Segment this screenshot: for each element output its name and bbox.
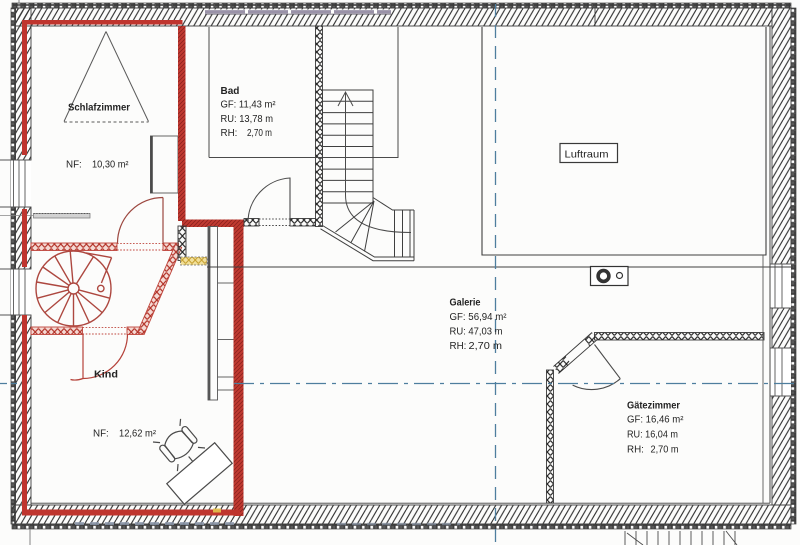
- svg-text:NF:: NF:: [66, 160, 82, 171]
- svg-text:RU: 13,78 m: RU: 13,78 m: [221, 114, 274, 125]
- svg-text:NF:: NF:: [93, 428, 109, 439]
- svg-text:10,30 m²: 10,30 m²: [92, 160, 129, 171]
- svg-text:RH:: RH:: [450, 341, 467, 352]
- svg-text:2,70 m: 2,70 m: [247, 128, 272, 139]
- svg-text:2,70 m: 2,70 m: [469, 341, 503, 352]
- svg-text:Gätezimmer: Gätezimmer: [627, 400, 680, 411]
- svg-text:GF: 16,46 m²: GF: 16,46 m²: [627, 414, 684, 425]
- svg-text:2,70 m: 2,70 m: [651, 444, 679, 455]
- svg-text:RH:: RH:: [627, 444, 644, 455]
- svg-text:12,62 m²: 12,62 m²: [119, 428, 157, 439]
- svg-text:Luftraum: Luftraum: [565, 149, 609, 161]
- svg-text:Schlafzimmer: Schlafzimmer: [68, 103, 130, 114]
- svg-text:RU: 16,04 m: RU: 16,04 m: [627, 429, 678, 440]
- svg-text:Bad: Bad: [221, 86, 240, 97]
- svg-text:Kind: Kind: [94, 370, 118, 381]
- svg-text:Galerie: Galerie: [450, 297, 481, 308]
- svg-text:RH:: RH:: [221, 128, 238, 139]
- svg-text:GF: 56,94 m²: GF: 56,94 m²: [450, 312, 508, 323]
- svg-text:GF: 11,43 m²: GF: 11,43 m²: [221, 100, 277, 111]
- svg-text:RU: 47,03 m: RU: 47,03 m: [450, 327, 503, 338]
